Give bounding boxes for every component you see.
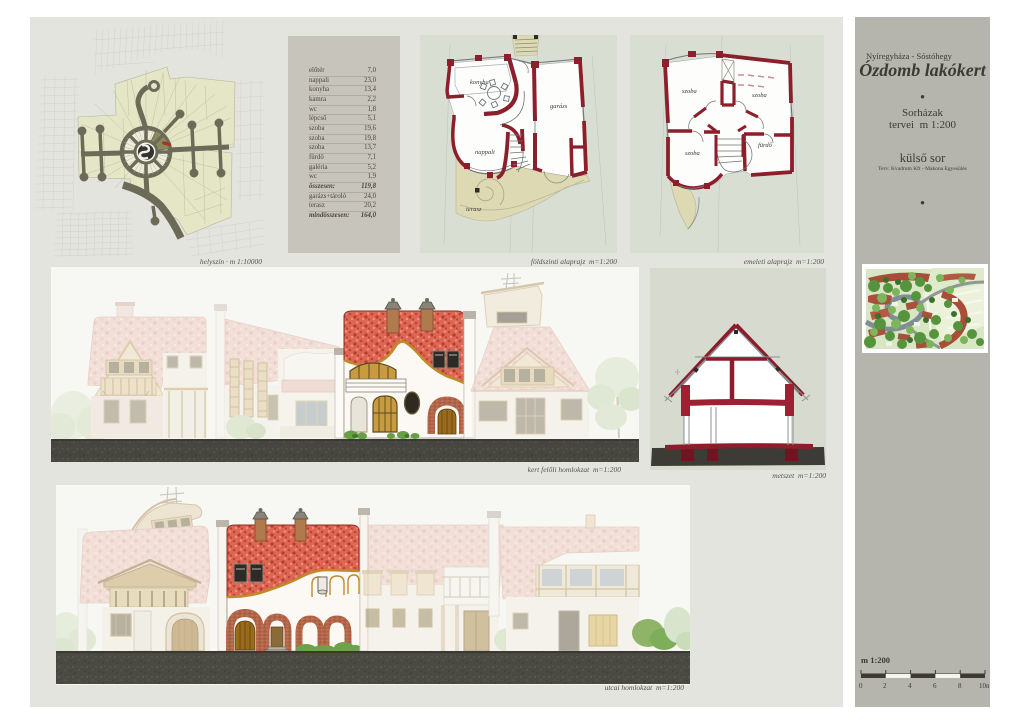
svg-text:2: 2 [883,682,887,690]
svg-text:garázs: garázs [550,103,568,110]
svg-text:10m: 10m [979,682,989,690]
svg-text:szoba: szoba [682,88,697,95]
svg-text:0: 0 [859,682,863,690]
svg-text:nappali: nappali [475,149,495,156]
svg-text:8: 8 [958,682,962,690]
svg-text:szoba: szoba [752,92,767,99]
svg-text:terasz: terasz [466,206,482,213]
svg-text:konyha: konyha [470,79,489,86]
svg-text:4: 4 [908,682,912,690]
svg-text:szoba: szoba [685,150,700,157]
svg-text:6: 6 [933,682,937,690]
svg-text:fürdő: fürdő [758,142,773,149]
